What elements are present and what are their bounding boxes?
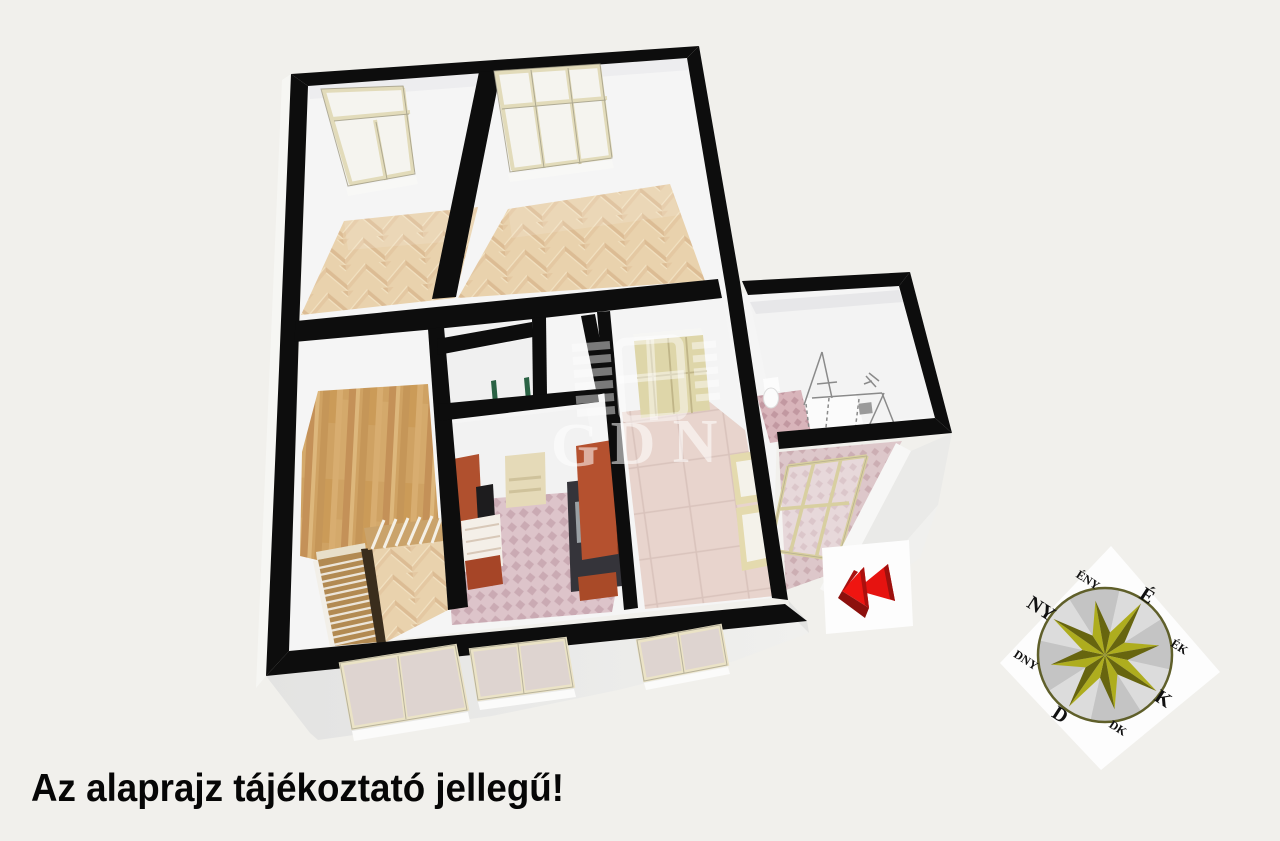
svg-text:D: D [611,410,656,478]
svg-text:G: G [551,412,599,480]
svg-text:N: N [673,408,718,476]
svg-text:Az alaprajz tájékoztató jelleg: Az alaprajz tájékoztató jellegű! [31,767,564,810]
